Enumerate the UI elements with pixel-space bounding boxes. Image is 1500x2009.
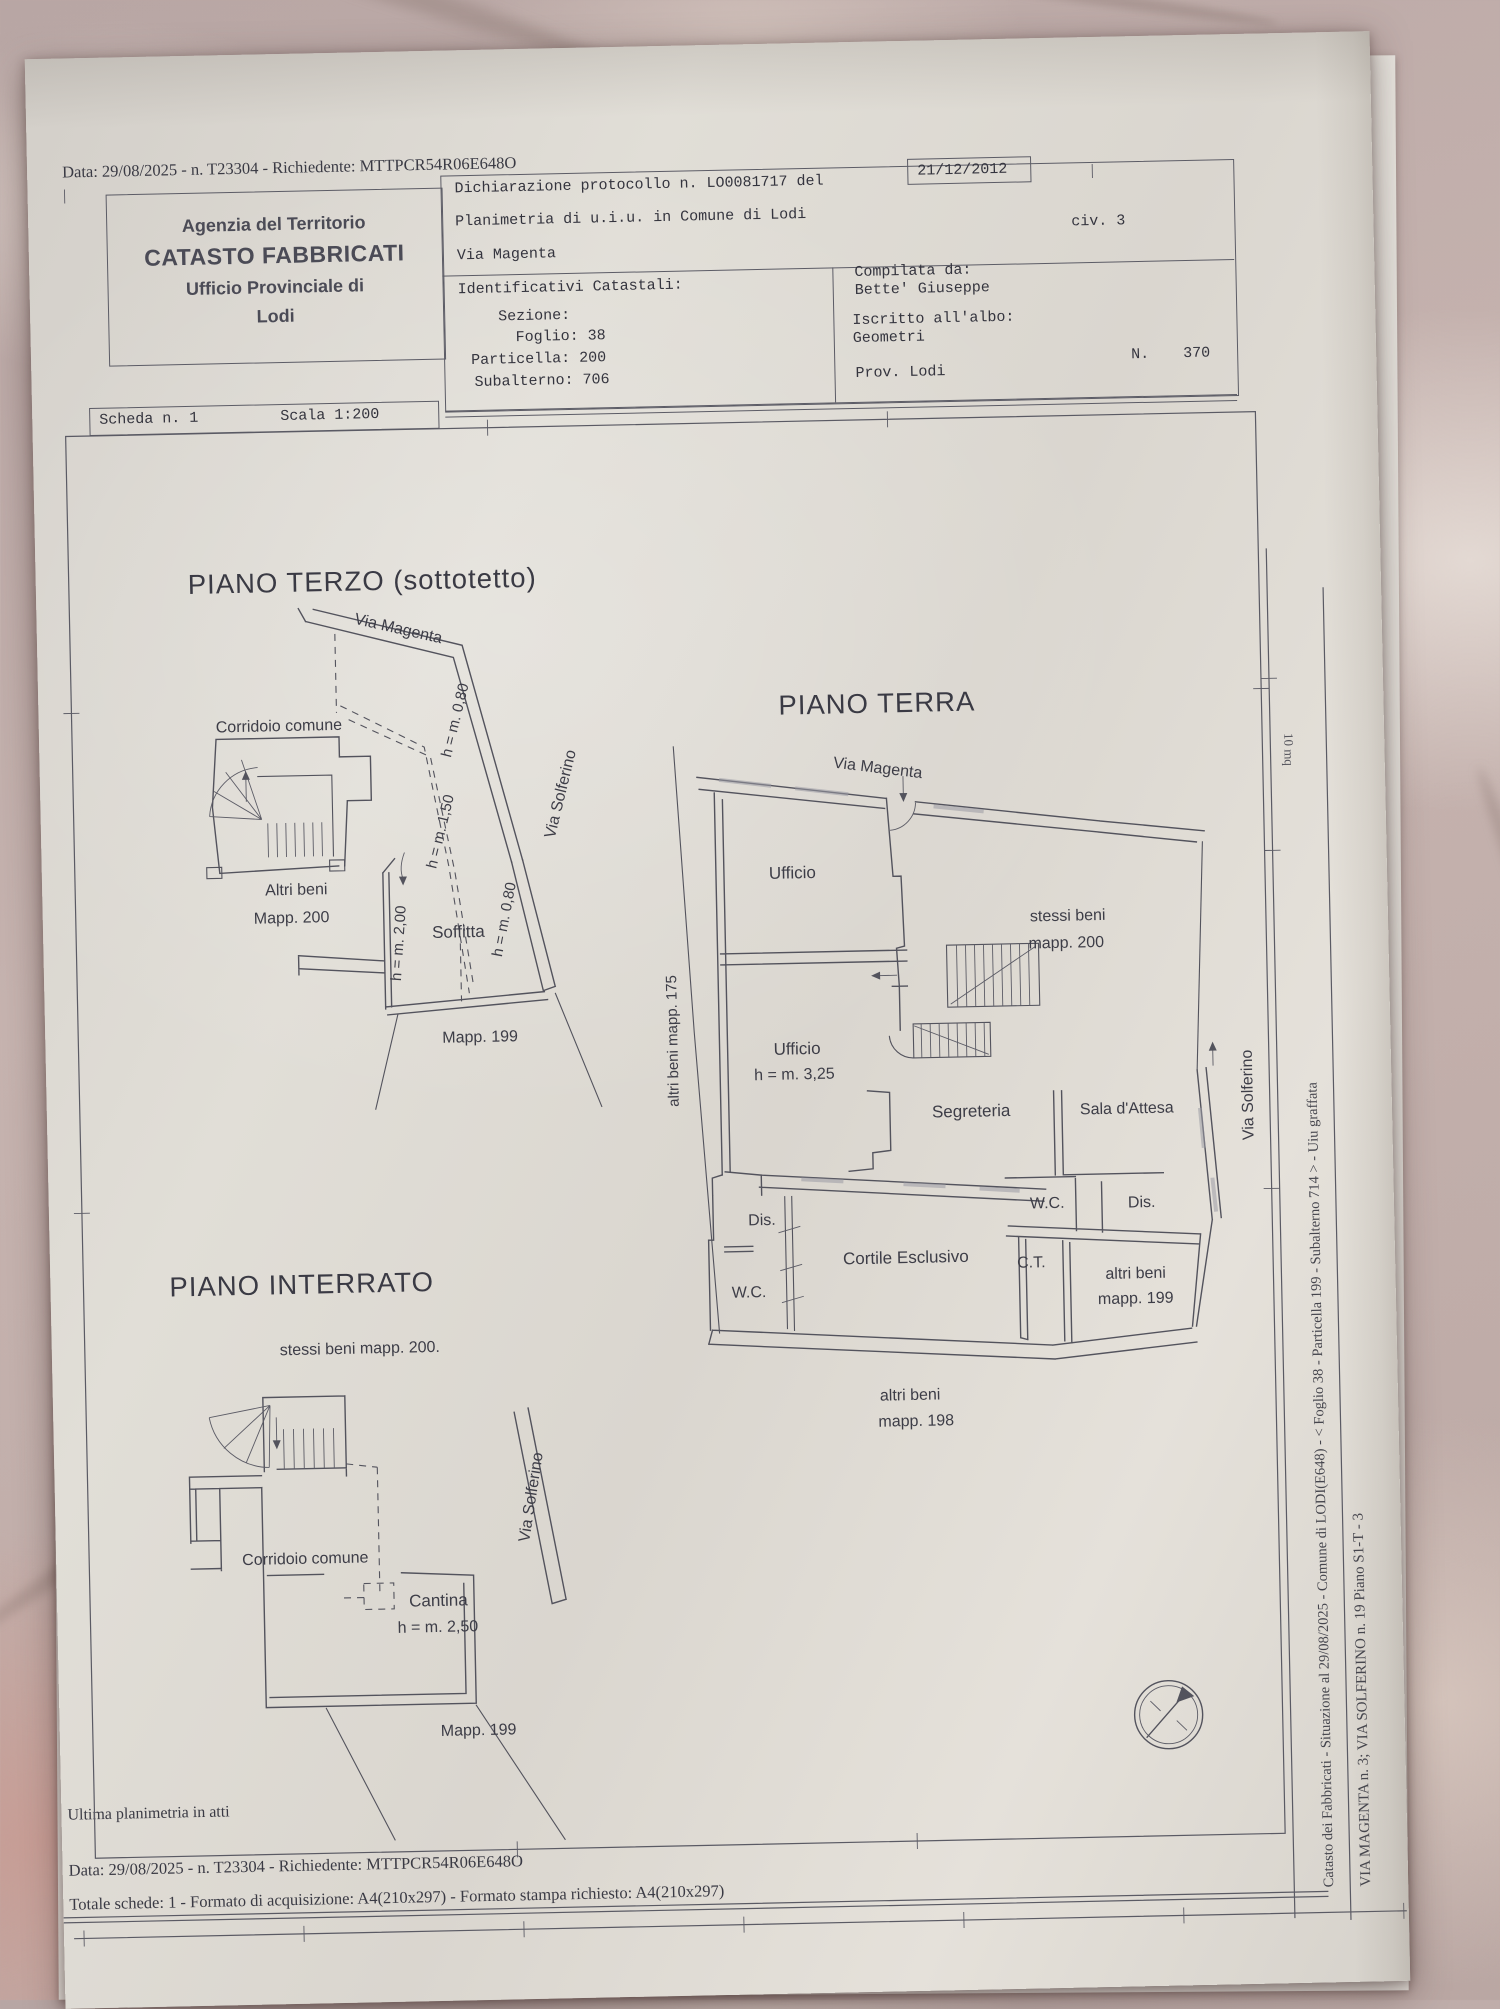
terra-ufficio2-label: Ufficio [773,1039,820,1059]
terzo-mapp200-label: Mapp. 200 [254,909,330,928]
terzo-altri-beni-label: Altri beni [265,881,328,899]
terra-via-solferino-label: Via Solferino [1239,1049,1258,1140]
terra-h325-label: h = m. 3,25 [754,1066,835,1085]
terra-mapp198-label: mapp. 198 [878,1412,954,1431]
page-frame-lines [25,158,1407,1947]
side-mq-note: 10 mq [1281,733,1297,767]
photo-of-cadastral-document: { "colors": {"marble":"#bdaaa8","paper":… [0,0,1500,2000]
piano-terzo-drawing: PIANO TERZO (sottotetto) Via Magenta Cor… [187,561,601,1115]
north-compass-icon [1134,1680,1203,1749]
terra-dis2-label: Dis. [1128,1194,1156,1212]
terra-wc-right-label: W.C. [1030,1195,1065,1213]
marble-vein [901,0,1279,30]
interrato-mapp199-label: Mapp. 199 [441,1721,517,1740]
terra-altri-beni-198-label: altri beni [880,1386,941,1404]
piano-terra-drawing: PIANO TERRA Via Magenta Ufficio stessi b… [657,680,1263,1435]
interrato-via-solferino-label: Via Solferino [516,1451,547,1543]
terra-altri-beni-199-label: altri beni [1105,1265,1166,1283]
interrato-stessi-beni-label: stessi beni mapp. 200. [280,1339,440,1359]
terzo-soffitta-label: Soffitta [432,922,486,942]
marble-vein [1471,764,1500,1051]
terzo-h150-label: h = m. 1,50 [423,793,458,870]
terra-stessi-beni-label: stessi beni [1030,907,1106,926]
piano-interrato-title: PIANO INTERRATO [169,1266,434,1303]
terra-dis1-label: Dis. [748,1212,776,1230]
interrato-cantina-label: Cantina [409,1590,469,1610]
terzo-h080b-label: h = m. 0,80 [489,881,520,958]
terra-wc-left-label: W.C. [732,1284,767,1302]
side-catasto-line: Catasto dei Fabbricati - Situazione al 2… [1304,1081,1337,1887]
terra-mapp200-label: mapp. 200 [1028,934,1104,953]
terzo-h080a-label: h = m. 0,80 [438,682,473,759]
terra-ct-label: C.T. [1017,1254,1046,1272]
interrato-corridoio-label: Corridoio comune [242,1549,369,1569]
terra-mapp199-label: mapp. 199 [1098,1290,1174,1309]
terra-segreteria-label: Segreteria [932,1101,1011,1122]
terra-cortile-label: Cortile Esclusivo [843,1247,969,1269]
piano-interrato-drawing: PIANO INTERRATO stessi beni mapp. 200. C… [169,1263,571,1847]
terra-via-magenta-label: Via Magenta [832,755,923,782]
terzo-h200-label: h = m. 2,00 [388,905,410,981]
floorplan-drawing: PIANO TERZO (sottotetto) Via Magenta Cor… [25,31,1411,2009]
paper-sheet: Data: 29/08/2025 - n. T23304 - Richieden… [25,31,1411,2009]
terra-sala-attesa-label: Sala d'Attesa [1080,1099,1174,1118]
terzo-corridoio-label: Corridoio comune [216,717,343,737]
piano-terzo-title: PIANO TERZO (sottotetto) [187,562,537,600]
terzo-via-solferino-label: Via Solferino [542,748,580,840]
terzo-mapp199-label: Mapp. 199 [442,1028,518,1047]
piano-terra-title: PIANO TERRA [778,686,976,721]
terzo-via-magenta-label: Via Magenta [353,611,444,647]
terra-ufficio1-label: Ufficio [769,863,816,883]
interrato-h250-label: h = m. 2,50 [397,1618,478,1637]
terra-altri-beni-175-label: altri beni mapp. 175 [663,975,683,1107]
